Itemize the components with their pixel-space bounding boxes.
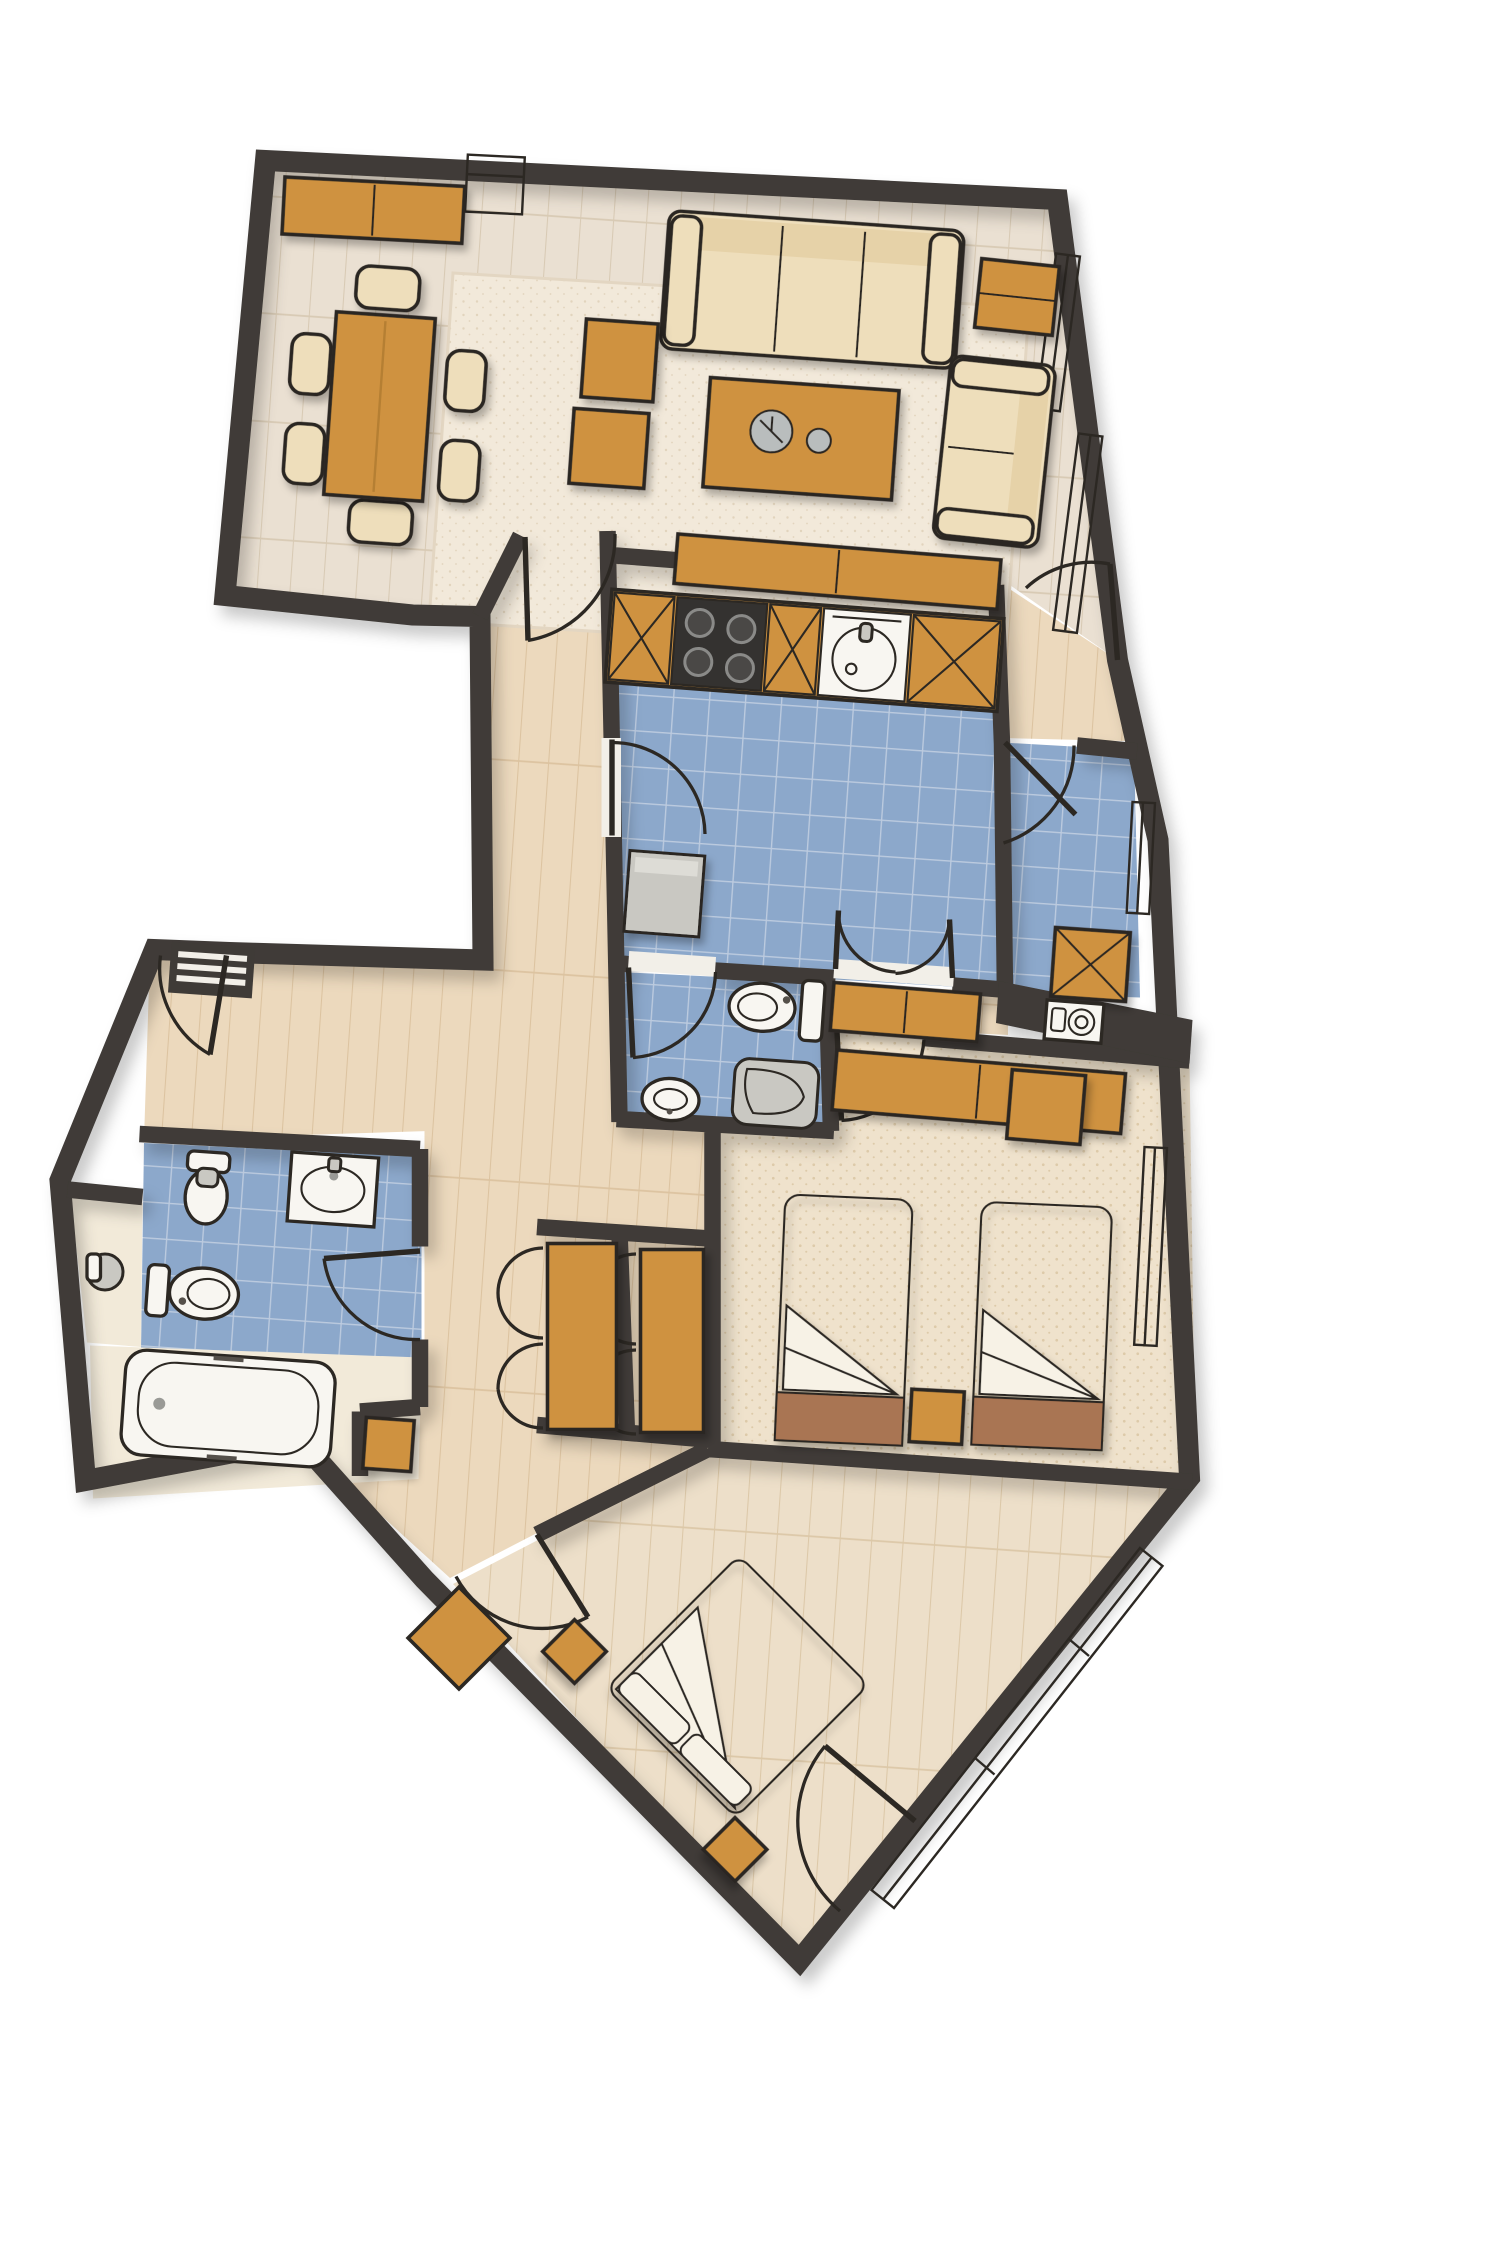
bathroom-tile-floor — [141, 1143, 422, 1359]
utility-cabinet-x — [1051, 927, 1131, 1001]
corner-side-table — [975, 259, 1060, 336]
loveseat — [933, 355, 1057, 548]
wardrobe-right — [641, 1250, 704, 1433]
wc-shower-tray — [731, 1058, 819, 1130]
entry-vent-grate — [168, 942, 255, 999]
sofa-three-seat — [660, 211, 964, 369]
washing-machine — [1044, 1000, 1104, 1043]
floor-plan-svg — [0, 0, 1500, 2250]
void-lightwell — [225, 596, 483, 961]
kitchen-appliance — [624, 851, 705, 937]
coffee-table — [703, 378, 899, 500]
hall-console — [830, 983, 980, 1042]
bathroom-cabinet — [363, 1417, 414, 1471]
kitchen-sink — [818, 608, 911, 701]
bathroom-sink — [287, 1152, 379, 1227]
bathroom-toilet — [145, 1264, 240, 1321]
wardrobe-left — [548, 1244, 617, 1430]
twin-nightstand — [909, 1389, 964, 1444]
bidet — [183, 1151, 230, 1226]
bathtub — [120, 1349, 337, 1468]
side-desk — [1007, 1070, 1086, 1145]
floor-plan: Apartment floor plan — hand-drawn archit… — [0, 0, 1500, 2250]
stove — [671, 597, 767, 691]
water-heater — [87, 1254, 123, 1290]
wall-sideboard — [282, 177, 465, 243]
decor-bowl — [806, 428, 832, 454]
